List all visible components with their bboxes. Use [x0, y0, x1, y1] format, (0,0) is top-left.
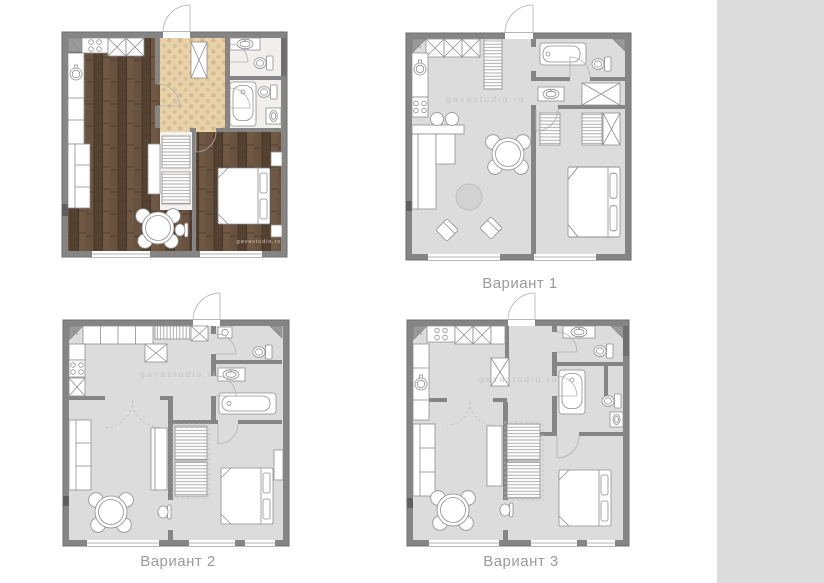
dining-table-icon — [136, 209, 181, 249]
variant-2-label: Вариант 2 — [108, 553, 248, 570]
shelving-unit — [507, 462, 540, 498]
variant-3-label: Вариант 3 — [451, 553, 591, 570]
desk-chair-icon — [500, 503, 513, 517]
sofa-icon — [412, 134, 436, 209]
wardrobe-icon — [108, 38, 126, 56]
wardrobe-icon — [444, 39, 462, 57]
dining-table-icon — [431, 491, 476, 531]
sink-icon — [571, 327, 587, 337]
watermark: gavastudio.ru — [140, 369, 220, 379]
watermark: gavastudio.ru — [237, 239, 282, 245]
nightstand — [271, 152, 282, 166]
tv-console — [487, 426, 502, 486]
stove-icon — [412, 97, 428, 117]
bed-icon — [218, 168, 270, 224]
shelving-unit — [484, 39, 502, 89]
floor-plan-original: gavastudio.ru — [62, 5, 287, 257]
nightstand — [271, 225, 282, 237]
entrance-door-arc — [163, 5, 190, 32]
entrance-door-arc — [193, 293, 220, 320]
dresser — [274, 450, 283, 480]
floor-plan-variant-2: gavastudio.ru — [63, 293, 289, 546]
balcony-door — [62, 204, 68, 216]
entrance-opening — [505, 33, 533, 39]
wardrobe-icon — [455, 326, 473, 344]
rug — [456, 184, 482, 210]
shelving-unit — [175, 462, 207, 496]
entrance-opening — [193, 320, 220, 326]
desk-chair-icon — [175, 223, 188, 237]
tv-console — [151, 428, 167, 490]
sink-icon — [237, 39, 253, 49]
wardrobe-icon — [540, 113, 560, 145]
bar-counter — [412, 125, 464, 134]
bed-icon — [568, 167, 620, 237]
bed-icon — [221, 468, 273, 524]
bed-icon — [559, 470, 611, 526]
desk — [148, 144, 160, 194]
wardrobe-icon — [462, 39, 480, 57]
floor-plan-variant-3: gavastudio.ru — [407, 293, 629, 546]
sink-icon — [543, 89, 559, 99]
entrance-door-arc — [505, 5, 533, 33]
wardrobe-icon — [473, 326, 491, 344]
watermark: gavastudio.ru — [446, 94, 526, 104]
sofa-icon — [69, 420, 91, 490]
shelving-unit — [162, 136, 190, 168]
stool-icon — [446, 113, 459, 126]
entrance-opening — [508, 320, 535, 326]
wardrobe-icon — [126, 38, 144, 56]
stove-icon — [427, 326, 455, 342]
variant-1-label: Вариант 1 — [450, 275, 590, 292]
stove-icon — [82, 38, 108, 53]
stove-icon — [69, 360, 85, 377]
page: { "page": { "background": "#ffffff" }, "… — [0, 0, 824, 583]
sofa-icon — [413, 424, 435, 496]
desk-chair-icon — [158, 505, 171, 519]
shelving-unit — [155, 326, 191, 339]
dining-table-icon — [89, 493, 134, 533]
sofa-icon — [68, 144, 90, 208]
entrance-opening — [163, 32, 190, 38]
shelving-unit — [175, 426, 207, 460]
dining-table-icon — [486, 135, 531, 175]
watermark: gavastudio.ru — [479, 374, 559, 384]
wardrobe-icon — [582, 113, 602, 145]
stool-icon — [431, 113, 444, 126]
wardrobe-icon — [426, 39, 444, 57]
shelving-unit — [162, 172, 190, 204]
floor-plans-svg: gavastudio.ru — [0, 0, 824, 583]
floor-plan-variant-1: gavastudio.ru — [406, 5, 631, 260]
shelving-unit — [507, 424, 540, 460]
entrance-door-arc — [508, 293, 535, 320]
